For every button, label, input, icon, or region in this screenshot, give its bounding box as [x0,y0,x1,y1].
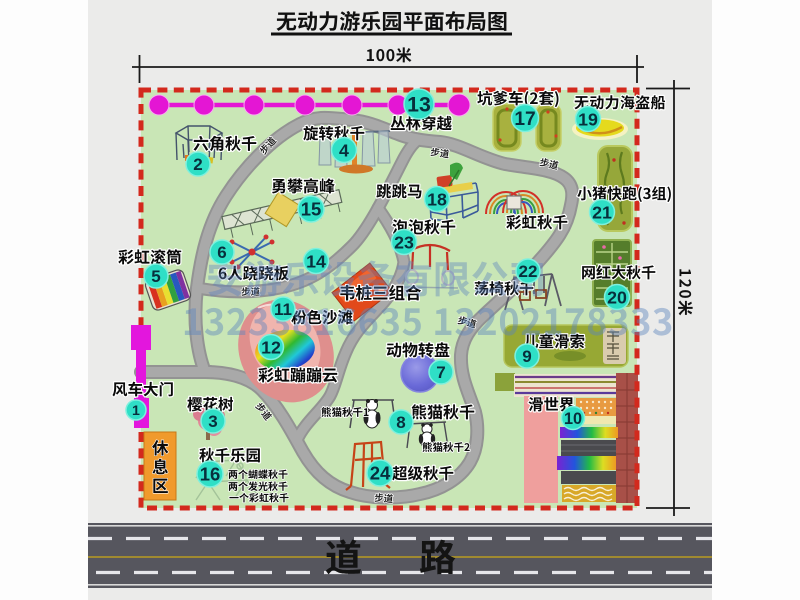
svg-text:18: 18 [427,189,447,209]
svg-text:23: 23 [394,232,414,252]
svg-text:11: 11 [274,300,292,319]
svg-text:5: 5 [151,267,160,286]
svg-text:3: 3 [208,412,217,431]
svg-text:20: 20 [607,287,627,307]
svg-text:8: 8 [396,413,405,432]
svg-text:13: 13 [407,93,431,117]
svg-text:4: 4 [339,140,349,160]
svg-text:21: 21 [592,202,612,222]
svg-text:7: 7 [436,363,445,382]
svg-text:22: 22 [519,262,538,281]
svg-text:24: 24 [370,463,391,484]
svg-text:12: 12 [261,337,281,357]
svg-text:16: 16 [200,464,221,485]
svg-text:15: 15 [301,199,322,220]
svg-text:1: 1 [132,403,140,419]
svg-text:2: 2 [193,155,202,174]
svg-text:9: 9 [522,347,531,366]
svg-text:19: 19 [578,109,598,129]
svg-text:17: 17 [514,109,535,130]
svg-text:6: 6 [217,243,226,262]
svg-text:10: 10 [564,410,582,428]
svg-text:14: 14 [306,251,326,271]
